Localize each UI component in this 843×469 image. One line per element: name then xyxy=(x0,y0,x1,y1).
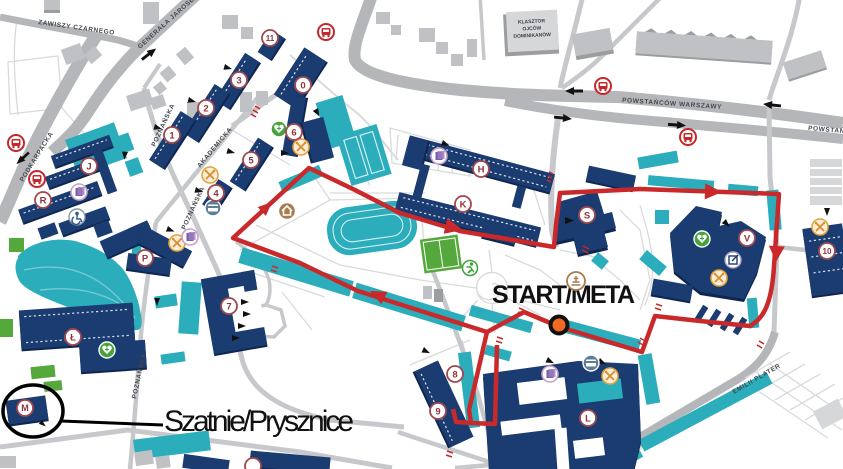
svg-text:9: 9 xyxy=(435,407,440,418)
svg-text:K: K xyxy=(460,200,467,211)
svg-text:1: 1 xyxy=(169,131,175,142)
svg-text:0: 0 xyxy=(300,81,305,92)
svg-text:2: 2 xyxy=(203,104,208,115)
svg-text:S: S xyxy=(584,211,590,222)
svg-text:7: 7 xyxy=(226,302,231,313)
svg-text:8: 8 xyxy=(452,370,457,381)
svg-text:P: P xyxy=(142,254,149,265)
svg-text:4: 4 xyxy=(213,189,219,200)
svg-text:Szatnie/Prysznice: Szatnie/Prysznice xyxy=(164,405,354,438)
svg-text:Ł: Ł xyxy=(70,333,76,344)
svg-text:M: M xyxy=(21,403,29,413)
svg-text:J: J xyxy=(86,162,91,173)
svg-text:10: 10 xyxy=(823,247,832,256)
svg-text:R: R xyxy=(40,196,47,207)
svg-text:V: V xyxy=(744,234,751,245)
svg-text:6: 6 xyxy=(291,128,296,139)
svg-text:H: H xyxy=(478,165,485,176)
svg-text:L: L xyxy=(585,414,591,425)
svg-text:5: 5 xyxy=(248,156,254,167)
svg-text:3: 3 xyxy=(236,76,241,87)
svg-text:11: 11 xyxy=(266,34,275,43)
svg-text:START/META: START/META xyxy=(492,281,635,309)
